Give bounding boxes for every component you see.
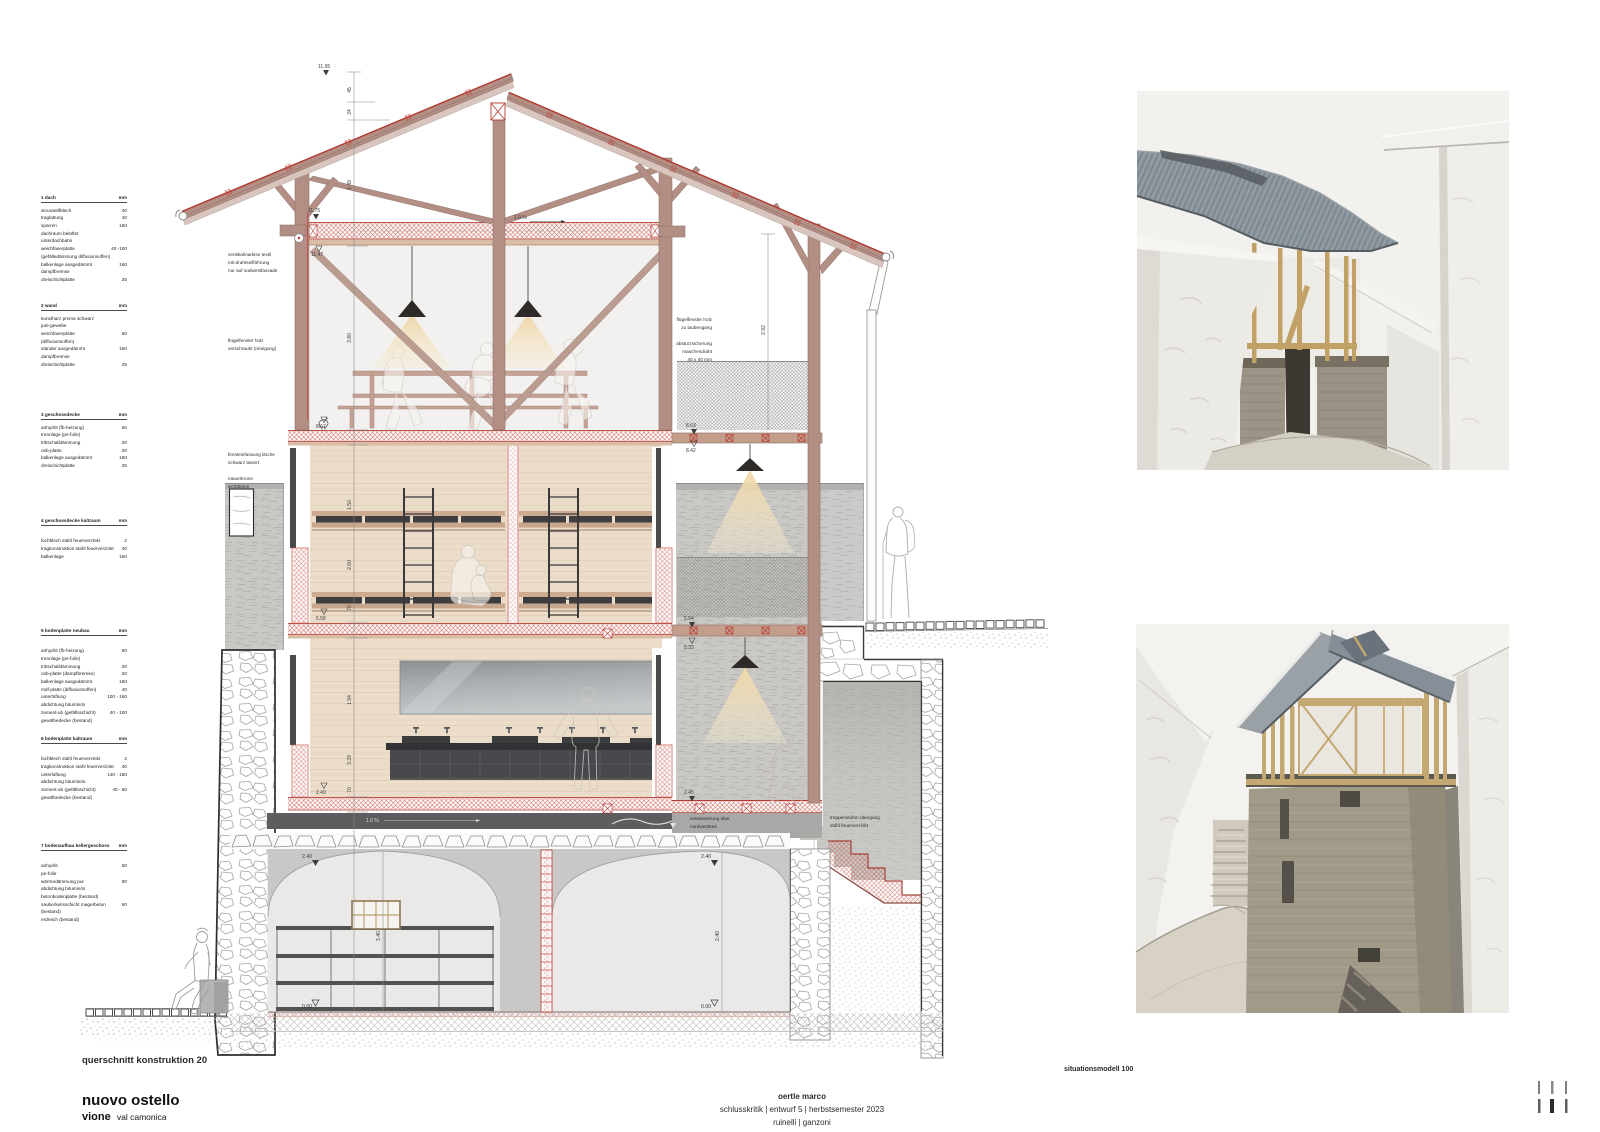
svg-text:3.40: 3.40 xyxy=(376,931,382,941)
svg-text:2.40: 2.40 xyxy=(302,854,312,860)
svg-text:1.49: 1.49 xyxy=(347,180,353,190)
svg-text:8.63: 8.63 xyxy=(686,423,696,429)
svg-text:70: 70 xyxy=(347,605,353,611)
svg-text:flügelfenster holz: flügelfenster holz xyxy=(677,317,713,322)
svg-text:absturzsicherung: absturzsicherung xyxy=(676,341,712,346)
svg-text:2.40: 2.40 xyxy=(715,931,721,941)
svg-text:8.42: 8.42 xyxy=(686,448,696,454)
svg-text:11.75: 11.75 xyxy=(308,208,320,214)
svg-text:0.00: 0.00 xyxy=(701,1004,711,1010)
svg-text:3.29: 3.29 xyxy=(347,755,353,765)
svg-text:70: 70 xyxy=(347,787,353,793)
svg-text:ventikalmarkise textil: ventikalmarkise textil xyxy=(228,252,271,257)
svg-text:schwarz lasiert: schwarz lasiert xyxy=(228,460,260,465)
svg-text:8.67: 8.67 xyxy=(316,424,326,430)
svg-text:2.60: 2.60 xyxy=(347,560,353,570)
svg-text:1.0 %: 1.0 % xyxy=(514,215,527,221)
svg-text:5.33: 5.33 xyxy=(684,645,694,651)
svg-text:2.92: 2.92 xyxy=(761,325,767,335)
svg-text:5.54: 5.54 xyxy=(684,616,694,622)
svg-text:11.47: 11.47 xyxy=(311,252,323,258)
svg-text:nur auf südwestfassade: nur auf südwestfassade xyxy=(228,268,278,273)
svg-text:3.80: 3.80 xyxy=(347,333,353,343)
svg-text:treppenstufen übergang: treppenstufen übergang xyxy=(830,815,880,820)
svg-text:2.49: 2.49 xyxy=(316,790,326,796)
svg-text:5.58: 5.58 xyxy=(316,616,326,622)
svg-text:45: 45 xyxy=(347,87,353,93)
svg-text:fensteinfassung lärche: fensteinfassung lärche xyxy=(228,452,275,457)
svg-text:0.00: 0.00 xyxy=(302,1004,312,1010)
svg-text:flügelfenster holz: flügelfenster holz xyxy=(228,338,264,343)
svg-text:1.50: 1.50 xyxy=(347,500,353,510)
svg-text:sichtbeton: sichtbeton xyxy=(228,484,250,489)
svg-text:nordwesttüre: nordwesttüre xyxy=(690,824,717,829)
svg-text:maschendraht: maschendraht xyxy=(682,349,712,354)
svg-text:1.94: 1.94 xyxy=(347,695,353,705)
svg-text:1.0 %: 1.0 % xyxy=(366,818,379,824)
svg-text:verschraubt (reinigung): verschraubt (reinigung) xyxy=(228,346,277,351)
svg-text:mauerkrone: mauerkrone xyxy=(228,476,253,481)
svg-text:zu laubengang: zu laubengang xyxy=(681,325,712,330)
svg-text:2.45: 2.45 xyxy=(684,790,694,796)
svg-text:24: 24 xyxy=(347,109,353,115)
svg-text:stahl feuerverzinkt: stahl feuerverzinkt xyxy=(830,823,869,828)
svg-text:2.40: 2.40 xyxy=(701,854,711,860)
svg-text:40 x 40 mm: 40 x 40 mm xyxy=(688,357,713,362)
svg-text:entwässerung über: entwässerung über xyxy=(690,816,730,821)
svg-text:11.95: 11.95 xyxy=(318,64,330,70)
svg-text:mit drahtseilführung: mit drahtseilführung xyxy=(228,260,270,265)
